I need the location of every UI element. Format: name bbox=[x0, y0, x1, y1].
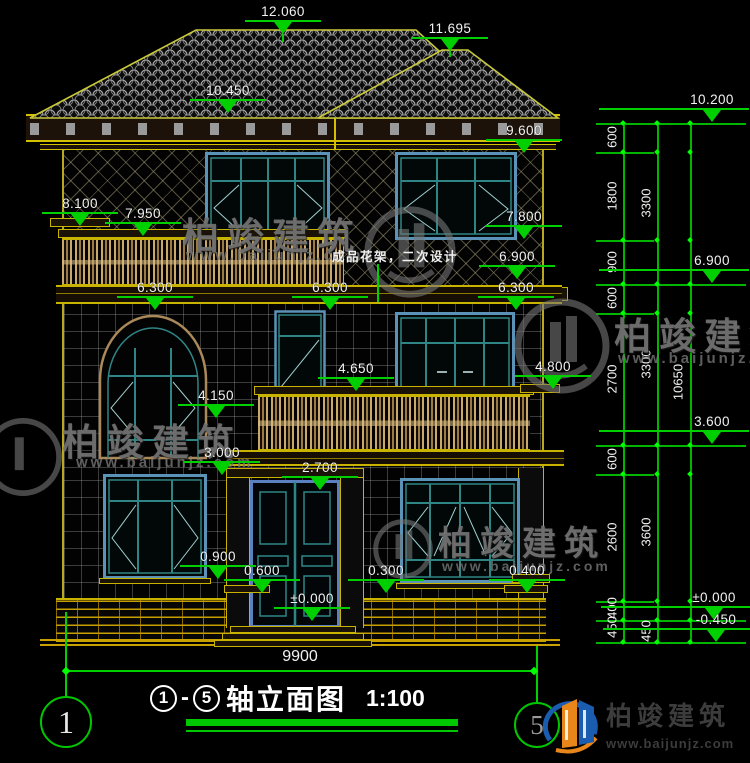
chain-tick-line bbox=[596, 123, 746, 125]
elevation-marker: -0.450 bbox=[641, 612, 750, 642]
elevation-marker: 6.300 bbox=[292, 280, 368, 310]
elevation-marker: 10.200 bbox=[637, 92, 750, 122]
elevation-marker: 0.300 bbox=[348, 563, 424, 593]
brand-text-block: 柏竣建筑 www.baijunjz.com bbox=[606, 696, 734, 751]
note-leader-line bbox=[377, 264, 379, 302]
chain-tick-dot bbox=[654, 471, 660, 477]
elevation-marker: 6.900 bbox=[479, 249, 555, 279]
elevation-marker: 6.300 bbox=[117, 280, 193, 310]
title-underline-thick bbox=[186, 719, 458, 726]
chain-tick-dot bbox=[654, 237, 660, 243]
elevation-marker: 4.800 bbox=[515, 359, 591, 389]
chain-tick-dot bbox=[620, 237, 626, 243]
chain-dim-label: 450 bbox=[605, 616, 620, 638]
elevation-marker: 9.600 bbox=[486, 123, 562, 153]
entry-step-1 bbox=[230, 626, 356, 633]
chain-extension-line bbox=[657, 123, 659, 642]
brand-logo-icon bbox=[540, 690, 604, 758]
chain-tick-dot bbox=[620, 149, 626, 155]
elevation-marker: 10.450 bbox=[190, 83, 266, 113]
elevation-marker: 6.900 bbox=[637, 253, 750, 283]
entry-step-2 bbox=[222, 633, 364, 640]
elevation-marker: 7.950 bbox=[105, 206, 181, 236]
axis-bubble-1-label: 1 bbox=[58, 704, 74, 741]
chain-extension-line bbox=[690, 123, 692, 642]
elevation-marker: 0.600 bbox=[224, 563, 300, 593]
elevation-drawing-canvas: 成品花架，二次设计 柏竣建筑 www.baijunjz.com 柏竣建筑 www… bbox=[0, 0, 750, 763]
chain-dim-label: 10650 bbox=[671, 364, 686, 400]
axis-line-5 bbox=[536, 646, 538, 704]
overall-dim-text: 9900 bbox=[282, 648, 318, 666]
title-axis-end: 5 bbox=[193, 685, 220, 712]
chain-tick-dot bbox=[654, 149, 660, 155]
dim-endpoint bbox=[62, 667, 70, 675]
elevation-marker: 3.000 bbox=[184, 445, 260, 475]
chain-dim-label: 1800 bbox=[605, 182, 620, 211]
chain-dim-label: 3600 bbox=[639, 518, 654, 547]
chain-tick-dot bbox=[620, 639, 626, 645]
balcony-2f-rail bbox=[254, 386, 534, 395]
chain-extension-line bbox=[623, 123, 625, 642]
chain-tick-dot bbox=[620, 120, 626, 126]
balcony-2f-balustrade bbox=[258, 395, 530, 450]
elevation-marker: 0.400 bbox=[489, 563, 565, 593]
chain-tick-line bbox=[596, 642, 746, 644]
chain-dim-label: 600 bbox=[605, 126, 620, 148]
chain-dim-label: 2600 bbox=[605, 523, 620, 552]
elevation-marker: ±0.000 bbox=[274, 591, 350, 621]
title-underline-thin bbox=[186, 730, 458, 732]
elevation-marker: 7.800 bbox=[486, 209, 562, 239]
chain-tick-dot bbox=[620, 471, 626, 477]
overall-dim-line bbox=[66, 670, 534, 672]
note-text: 成品花架，二次设计 bbox=[332, 246, 458, 265]
chain-tick-dot bbox=[687, 471, 693, 477]
elevation-marker: 11.695 bbox=[412, 21, 488, 57]
title-separator: - bbox=[181, 684, 189, 712]
chain-tick-dot bbox=[620, 598, 626, 604]
elevation-marker: 4.150 bbox=[178, 388, 254, 418]
watermark-logo-icon bbox=[0, 416, 64, 498]
elevation-marker: 12.060 bbox=[245, 4, 321, 42]
brand-site: www.baijunjz.com bbox=[606, 736, 734, 751]
title-scale: 1:100 bbox=[366, 685, 425, 712]
chain-dim-label: 600 bbox=[605, 448, 620, 470]
drawing-title: 1 - 5 轴立面图 1:100 bbox=[150, 678, 425, 718]
chain-tick-dot bbox=[687, 237, 693, 243]
chain-tick-dot bbox=[620, 442, 626, 448]
chain-tick-line bbox=[596, 445, 746, 447]
entry-step-3 bbox=[214, 640, 372, 647]
title-axis-start: 1 bbox=[150, 685, 177, 712]
elevation-marker: 6.300 bbox=[478, 280, 554, 310]
elevation-marker: 4.650 bbox=[318, 361, 394, 391]
title-name: 轴立面图 bbox=[226, 678, 346, 718]
balcony-slab-3600 bbox=[228, 450, 564, 466]
chain-tick-dot bbox=[620, 281, 626, 287]
watermark-brand-site: www.baijunjz.com bbox=[618, 350, 750, 367]
chain-tick-dot bbox=[687, 149, 693, 155]
chain-tick-dot bbox=[620, 617, 626, 623]
elevation-marker: 2.700 bbox=[282, 460, 358, 490]
axis-line-1 bbox=[65, 612, 67, 696]
axis-bubble-1: 1 bbox=[40, 696, 92, 748]
brand-name: 柏竣建筑 bbox=[606, 696, 734, 733]
elevation-marker: 3.600 bbox=[637, 414, 750, 444]
chain-dim-label: 3300 bbox=[639, 189, 654, 218]
chain-tick-line bbox=[596, 284, 746, 286]
